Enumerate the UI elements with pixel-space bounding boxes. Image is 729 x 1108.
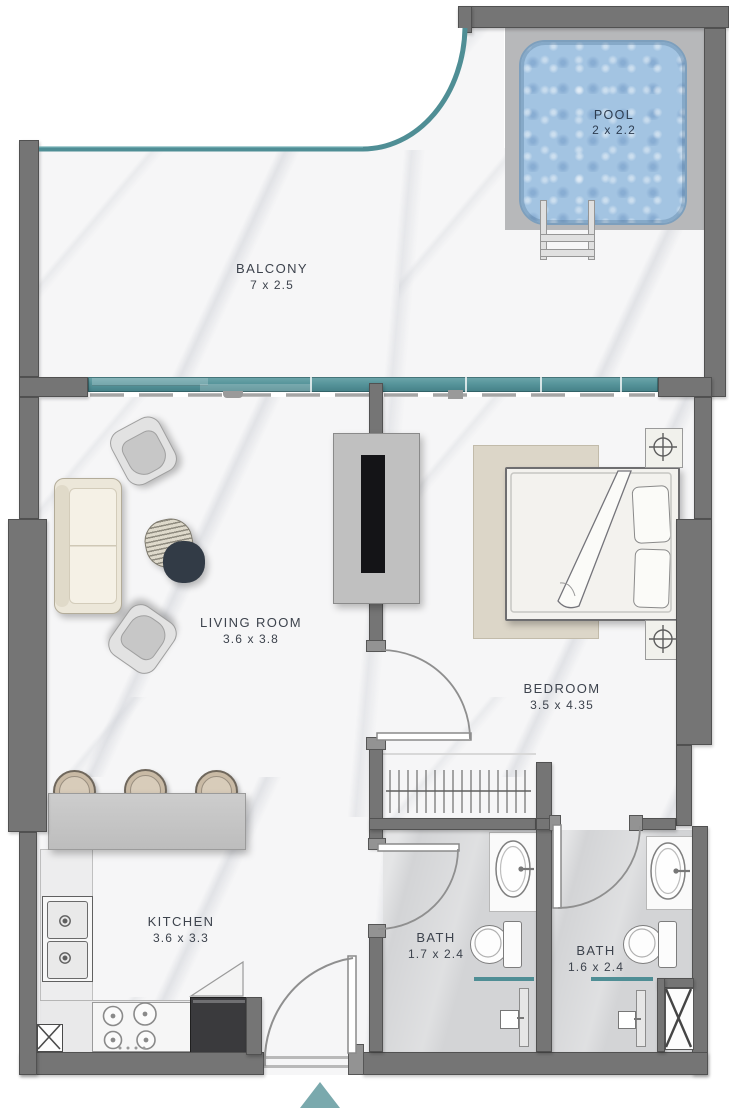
door-hinge-cap — [368, 838, 386, 850]
bar-counter — [48, 793, 246, 850]
toilet-tank — [658, 921, 677, 968]
wall-partition-mid — [369, 740, 383, 848]
toilet-tank — [503, 921, 522, 968]
room-dims: 2 x 2.2 — [592, 123, 636, 139]
pool-ladder-rung — [540, 234, 595, 242]
room-dims: 7 x 2.5 — [236, 278, 308, 294]
wall-left-balcony — [19, 140, 39, 377]
door-hinge-cap — [348, 1044, 364, 1075]
room-dims: 3.5 x 4.35 — [524, 698, 601, 714]
door-hinge-cap — [366, 737, 386, 750]
room-name: BATH — [568, 943, 624, 960]
room-dims: 1.7 x 2.4 — [408, 947, 464, 963]
shower-panel — [519, 988, 529, 1047]
shower-screen — [591, 977, 653, 981]
sink-basin — [47, 901, 88, 939]
glass-divider — [465, 377, 467, 392]
room-dims: 3.6 x 3.8 — [200, 632, 302, 648]
sofa — [54, 478, 122, 614]
wall-closet-bottom — [369, 818, 536, 830]
tv — [361, 455, 385, 573]
wall-band-stub-right — [658, 377, 712, 397]
toilet-bowl — [623, 925, 663, 964]
nightstand — [645, 428, 683, 468]
sofa-backrest — [55, 485, 69, 607]
shaft-wall-left — [657, 978, 665, 1052]
room-label-bath1: BATH 1.7 x 2.4 — [408, 930, 464, 962]
room-label-pool: POOL 2 x 2.2 — [592, 107, 636, 139]
armchair-seat — [117, 609, 172, 664]
room-label-balcony: BALCONY 7 x 2.5 — [236, 261, 308, 293]
wall-band-stub-left — [19, 377, 88, 397]
vanity-counter — [646, 836, 694, 910]
room-name: POOL — [592, 107, 636, 123]
room-name: KITCHEN — [148, 914, 215, 931]
wall-between-baths — [536, 762, 552, 1052]
shower-mixer — [500, 1010, 519, 1029]
wall-right-upper — [704, 28, 726, 397]
closet-edge-line — [383, 753, 536, 755]
room-name: BATH — [408, 930, 464, 947]
wall-right-bath-upper — [676, 745, 692, 826]
door-hinge-cap — [366, 640, 386, 652]
vanity-counter — [489, 832, 539, 912]
door-hinge-cap — [368, 924, 386, 938]
coffee-table-dark — [163, 541, 205, 583]
glass-panel — [200, 384, 310, 392]
glass-divider — [540, 377, 542, 392]
room-name: LIVING ROOM — [200, 615, 302, 632]
wall-left-column — [8, 519, 47, 832]
sink-basin — [47, 941, 88, 979]
room-label-living: LIVING ROOM 3.6 x 3.8 — [200, 615, 302, 647]
door-hinge-cap — [629, 815, 643, 831]
wall-bath2-top-right — [640, 818, 676, 830]
entrance-arrow — [300, 1082, 340, 1108]
wall-top-cap — [458, 6, 472, 33]
armchair-seat — [118, 427, 171, 481]
room-dims: 3.6 x 3.3 — [148, 931, 215, 947]
sofa-seat — [69, 488, 117, 604]
pool-ladder-rung — [540, 249, 595, 257]
pillow — [633, 548, 671, 608]
exterior-mask — [708, 826, 714, 1075]
stove — [92, 1002, 192, 1052]
pillow — [632, 485, 672, 544]
glass-handle — [448, 390, 463, 399]
wall-bottom-right — [362, 1052, 708, 1075]
room-label-bedroom: BEDROOM 3.5 x 4.35 — [524, 681, 601, 713]
glass-panel — [92, 378, 208, 386]
wall-left-living — [19, 397, 39, 519]
entry-threshold-line — [264, 1065, 349, 1068]
wall-left-kitchen — [19, 832, 37, 1075]
wall-bottom-left — [19, 1052, 264, 1075]
wall-right-bath-lower — [692, 826, 708, 1075]
shower-screen — [474, 977, 534, 981]
wall-top — [458, 6, 729, 28]
shower-mixer — [618, 1011, 636, 1029]
room-name: BALCONY — [236, 261, 308, 278]
room-label-bath2: BATH 1.6 x 2.4 — [568, 943, 624, 975]
oven — [190, 997, 248, 1055]
service-shaft — [665, 988, 694, 1050]
door-hinge-cap — [549, 815, 561, 831]
oven-handle — [193, 1000, 245, 1003]
room-dims: 1.6 x 2.4 — [568, 960, 624, 976]
balcony-floor-corner — [363, 28, 504, 150]
wall-right-bedroom-thin — [694, 397, 712, 519]
glass-handle — [223, 391, 243, 398]
glass-divider — [620, 377, 622, 392]
entry-threshold-line — [264, 1056, 349, 1059]
exterior-mask — [692, 745, 712, 826]
shower-panel — [636, 990, 646, 1047]
wall-entry-stub — [246, 997, 262, 1055]
wall-partition-low — [369, 926, 383, 1052]
column-marker — [37, 1024, 63, 1052]
floor-plan: POOL 2 x 2.2 BALCONY 7 x 2.5 LIVING ROOM… — [0, 0, 729, 1108]
room-name: BEDROOM — [524, 681, 601, 698]
glass-divider — [310, 377, 312, 392]
room-label-kitchen: KITCHEN 3.6 x 3.3 — [148, 914, 215, 946]
wall-right-bedroom-thick — [676, 519, 712, 745]
